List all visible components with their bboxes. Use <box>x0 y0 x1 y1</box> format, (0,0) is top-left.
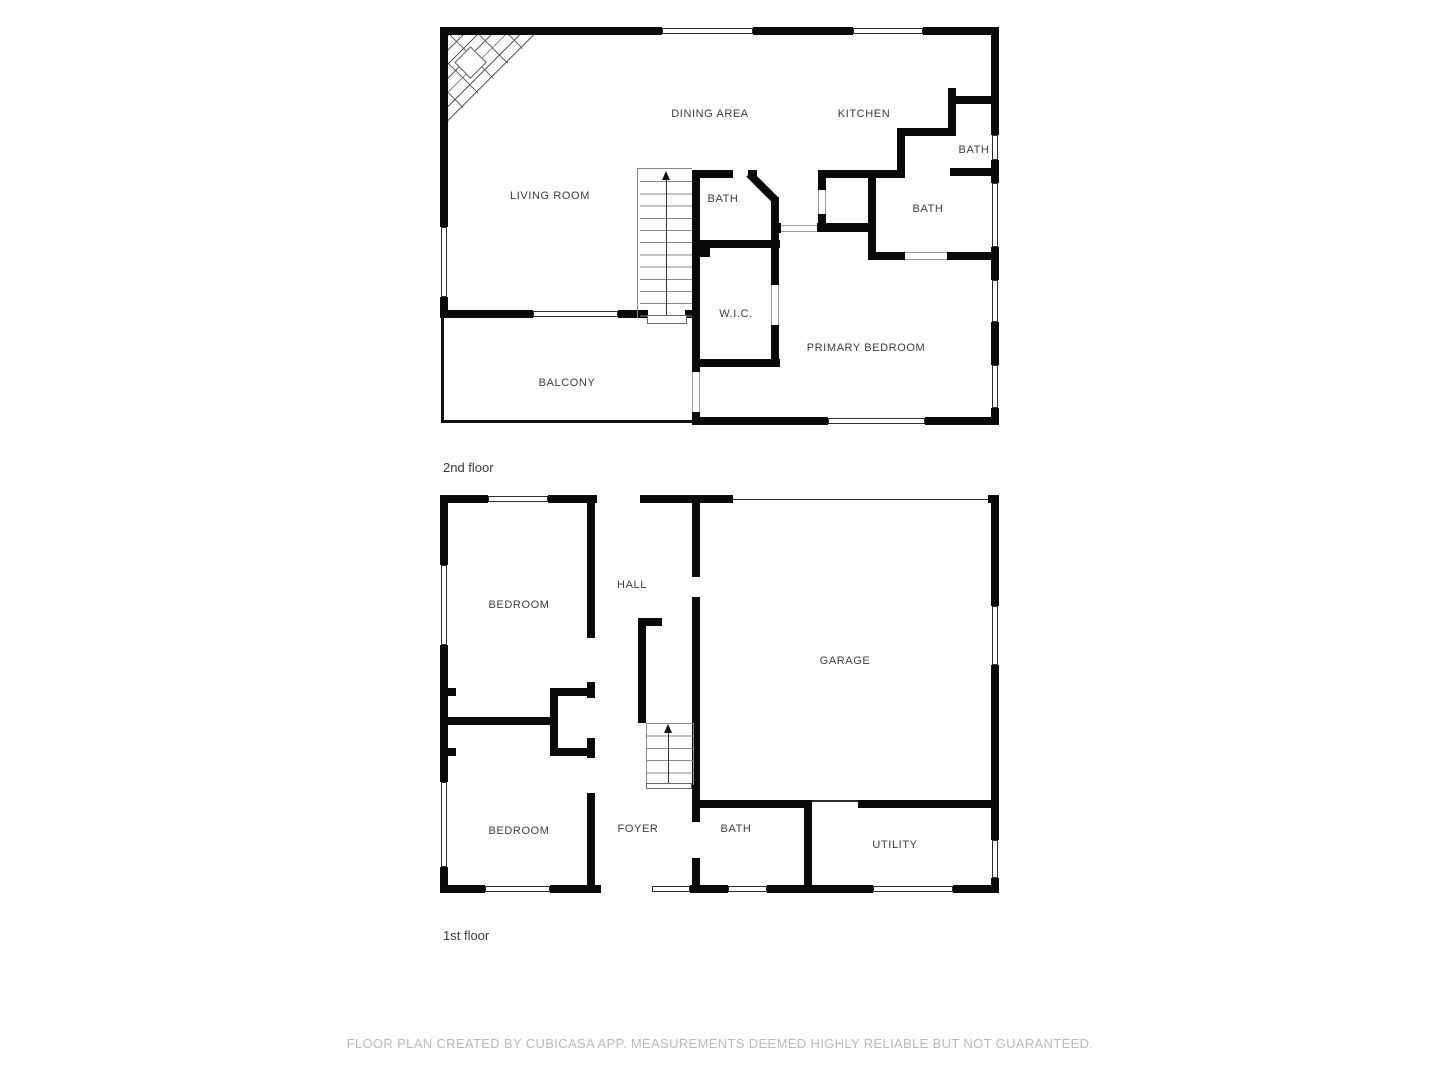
room-label: FOYER <box>618 823 659 835</box>
window <box>728 886 767 892</box>
wall-segment <box>440 495 448 565</box>
wall-segment <box>690 885 728 893</box>
window <box>485 886 550 892</box>
room-label: UTILITY <box>872 839 917 851</box>
window <box>441 565 447 645</box>
wall-segment <box>692 503 700 577</box>
floor-plan-page: LIVING ROOMDINING AREAKITCHENBATHBATHBAT… <box>0 0 1440 1080</box>
window <box>652 886 690 892</box>
wall-segment <box>804 800 812 885</box>
floor-caption-2nd: 2nd floor <box>443 460 494 475</box>
wall-segment <box>550 688 558 756</box>
room-label: BATH <box>721 823 752 835</box>
wall-segment <box>991 665 999 840</box>
wall-segment <box>692 800 812 808</box>
room-label: BEDROOM <box>488 825 549 837</box>
wall-segment <box>440 717 558 725</box>
wall-segment <box>692 800 700 822</box>
window <box>441 782 447 867</box>
window <box>488 496 548 502</box>
stairs-up-arrow <box>664 724 672 733</box>
room-label: HALL <box>617 579 647 591</box>
wall-segment <box>550 885 601 893</box>
wall-segment <box>991 495 999 606</box>
wall-segment <box>587 793 595 885</box>
window <box>992 840 998 878</box>
room-label: BEDROOM <box>488 599 549 611</box>
wall-segment <box>440 645 448 782</box>
wall-segment <box>767 885 873 893</box>
stairs-landing <box>646 783 692 789</box>
window <box>992 606 998 665</box>
wall-segment <box>587 495 595 638</box>
wall-segment <box>638 618 662 626</box>
stairs-direction-line <box>668 733 669 785</box>
wall-segment <box>440 688 456 696</box>
room-label: GARAGE <box>820 655 871 667</box>
wall-segment <box>440 885 485 893</box>
wall-segment <box>440 748 456 756</box>
door-line <box>812 800 858 802</box>
wall-segment <box>953 885 999 893</box>
wall-segment <box>858 800 999 808</box>
floor-plan-1st-floor: BEDROOMHALLGARAGEBEDROOMFOYERBATHUTILITY <box>0 0 1440 1080</box>
door-line <box>733 499 988 500</box>
footer-disclaimer: FLOOR PLAN CREATED BY CUBICASA APP. MEAS… <box>0 1036 1440 1051</box>
floor-caption-1st: 1st floor <box>443 928 489 943</box>
wall-segment <box>692 858 700 885</box>
wall-segment <box>638 618 646 723</box>
window <box>873 886 953 892</box>
wall-segment <box>640 495 733 503</box>
